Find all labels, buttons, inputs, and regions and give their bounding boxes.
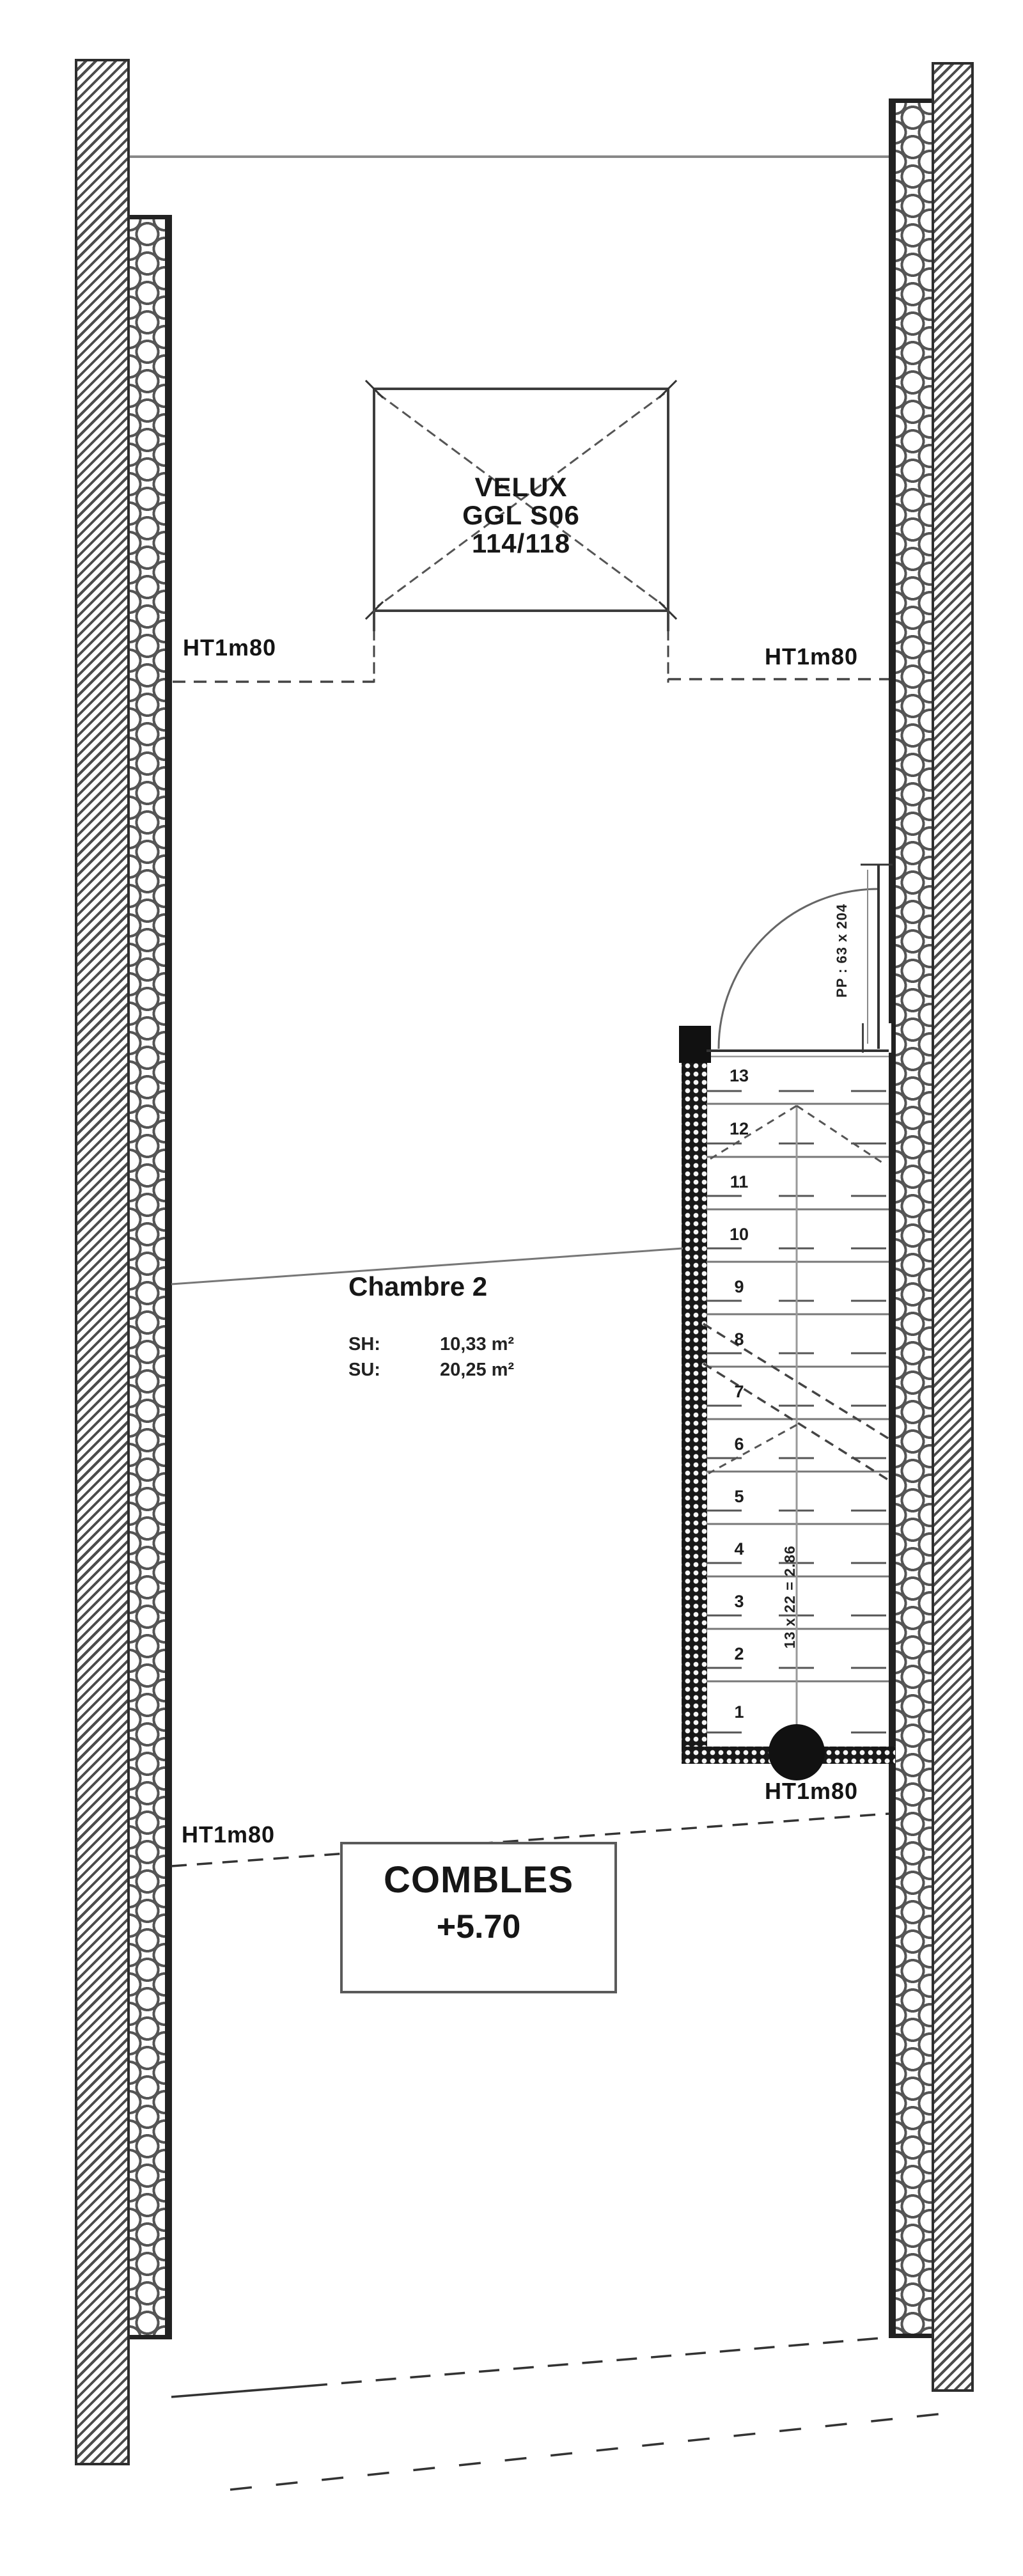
step-number: 11 (720, 1172, 758, 1192)
step-number: 12 (720, 1119, 758, 1139)
room-name: Chambre 2 (348, 1271, 487, 1302)
velux-brand: VELUX (374, 473, 668, 501)
room-sh-value: 10,33 m² (440, 1334, 514, 1355)
room-su-label: SU: (348, 1360, 380, 1381)
level-title-box: COMBLES +5.70 (340, 1842, 617, 1993)
headroom-label-upper-right: HT1m80 (765, 643, 858, 670)
room-su-value: 20,25 m² (440, 1360, 514, 1381)
velux-model: GGL S06 (374, 501, 668, 530)
roof-edge-lines (171, 2337, 956, 2490)
step-number: 2 (720, 1644, 758, 1664)
step-number: 6 (720, 1434, 758, 1454)
step-number: 7 (720, 1382, 758, 1402)
floor-plan: COMBLES +5.70 VELUX GGL S06 114/118 HT1m… (0, 0, 1023, 2576)
staircase (703, 1051, 891, 1780)
room-sh-label: SH: (348, 1334, 380, 1355)
door-swing (711, 865, 893, 1056)
stair-newel-post (769, 1724, 825, 1780)
step-number: 10 (720, 1225, 758, 1245)
step-number: 9 (720, 1277, 758, 1297)
velux-size: 114/118 (374, 530, 668, 558)
door-dimension-label: PP : 63 x 204 (834, 904, 850, 998)
step-number: 13 (720, 1066, 758, 1086)
step-number: 3 (720, 1592, 758, 1612)
velux-label: VELUX GGL S06 114/118 (374, 473, 668, 558)
headroom-label-lower-right: HT1m80 (765, 1778, 858, 1805)
headroom-label-upper-left: HT1m80 (183, 634, 276, 661)
headroom-label-lower-left: HT1m80 (182, 1821, 275, 1848)
step-number: 5 (720, 1487, 758, 1507)
step-number: 1 (720, 1702, 758, 1722)
door-arc (719, 889, 879, 1049)
level-elevation: +5.70 (343, 1908, 614, 1946)
step-number: 4 (720, 1539, 758, 1559)
plan-linework (0, 0, 1023, 2576)
step-number: 8 (720, 1330, 758, 1349)
level-name: COMBLES (343, 1858, 614, 1901)
stair-dimension-label: 13 x 22 = 2.86 (781, 1545, 799, 1649)
